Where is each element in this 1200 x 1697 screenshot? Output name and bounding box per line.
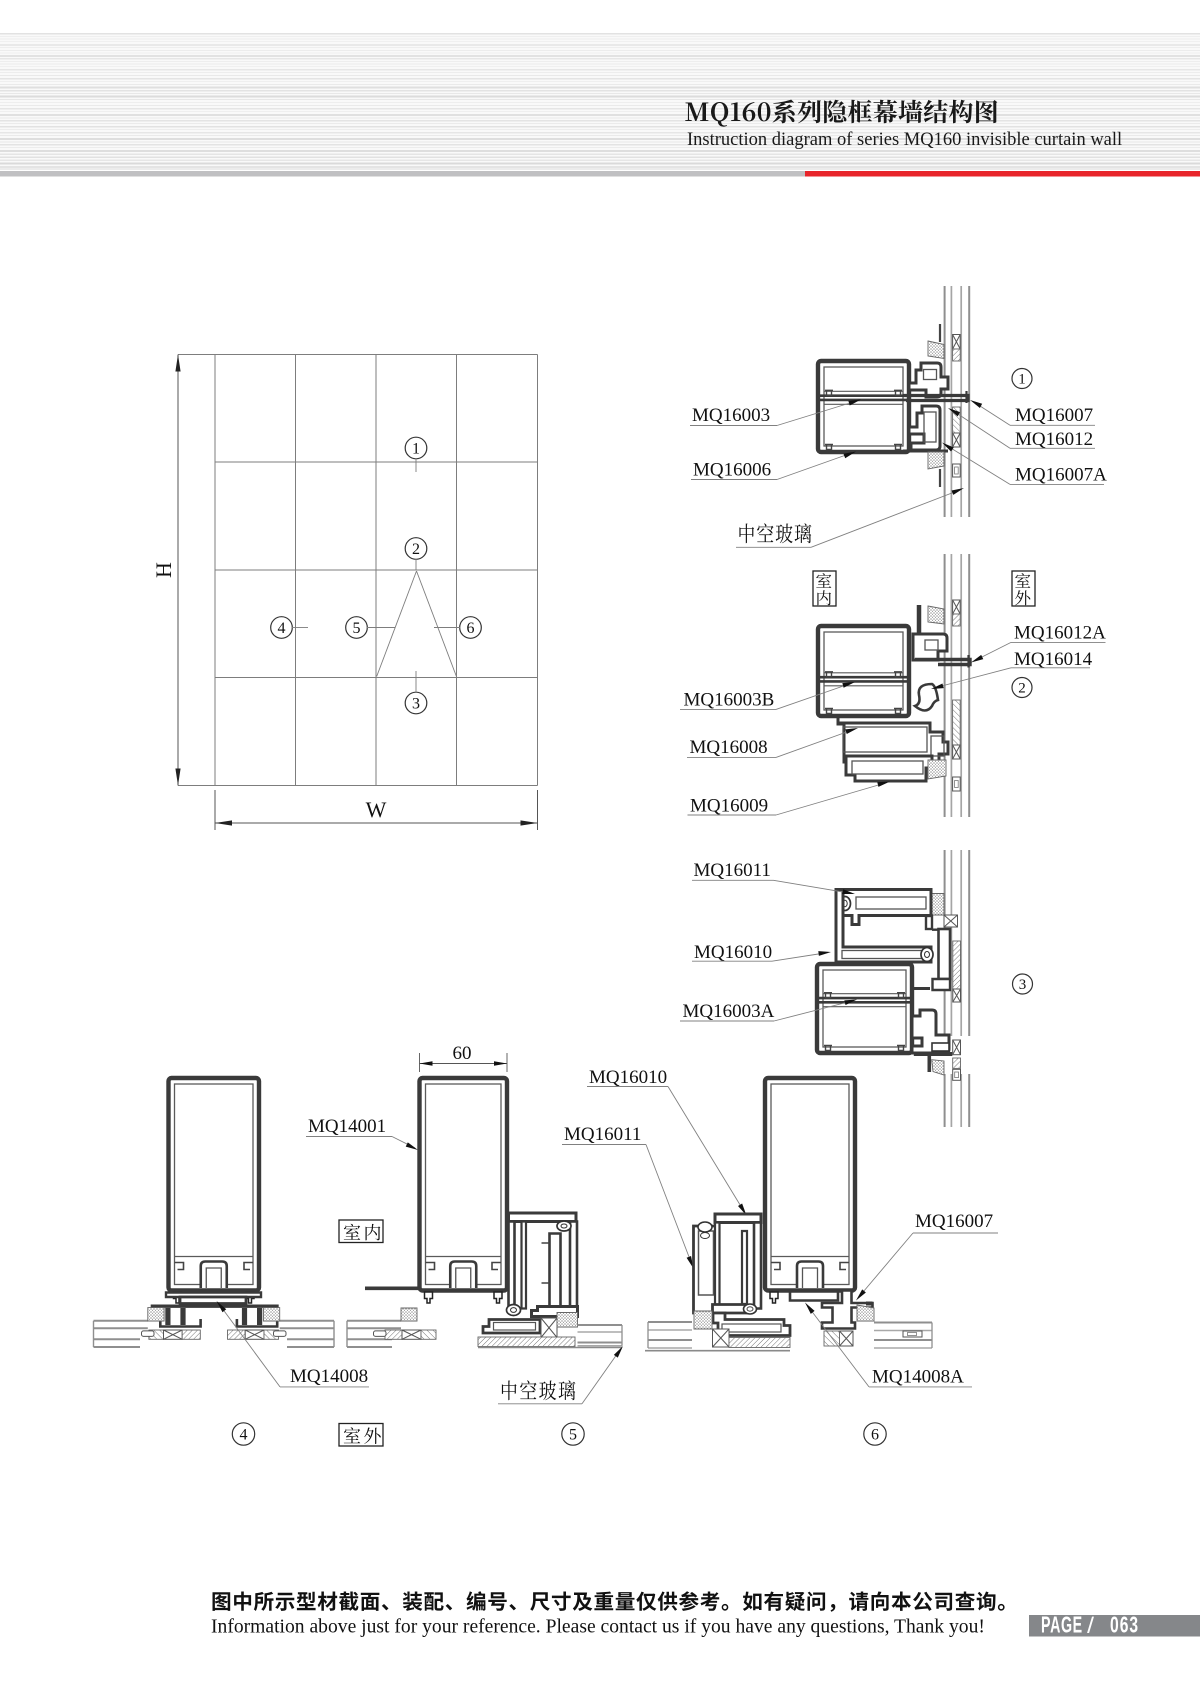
svg-text:MQ16009: MQ16009 (690, 796, 768, 817)
svg-text:Information above just for you: Information above just for your referenc… (211, 1617, 985, 1638)
svg-text:2: 2 (412, 541, 420, 558)
svg-text:063: 063 (1110, 1613, 1139, 1639)
svg-text:3: 3 (412, 696, 420, 713)
svg-text:MQ16003B: MQ16003B (684, 690, 775, 711)
svg-text:MQ16003: MQ16003 (692, 405, 770, 426)
svg-text:1: 1 (1018, 372, 1026, 388)
svg-text:6: 6 (467, 620, 475, 637)
svg-text:MQ16008: MQ16008 (690, 737, 768, 758)
svg-text:MQ16010: MQ16010 (589, 1067, 667, 1088)
svg-text:PAGE: PAGE (1041, 1613, 1083, 1638)
svg-text:5: 5 (353, 620, 361, 637)
svg-text:MQ14008A: MQ14008A (872, 1367, 964, 1388)
svg-text:MQ16014: MQ16014 (1014, 649, 1093, 670)
svg-text:MQ16012: MQ16012 (1015, 429, 1093, 450)
svg-text:MQ16003A: MQ16003A (683, 1001, 775, 1022)
svg-text:MQ16012A: MQ16012A (1014, 623, 1106, 644)
svg-text:3: 3 (1019, 977, 1027, 993)
svg-text:2: 2 (1018, 681, 1026, 697)
svg-text:4: 4 (278, 620, 286, 637)
svg-text:5: 5 (569, 1427, 577, 1444)
svg-text:60: 60 (453, 1043, 472, 1064)
svg-text:4: 4 (240, 1427, 248, 1444)
svg-text:MQ16010: MQ16010 (694, 942, 772, 963)
svg-text:MQ16007A: MQ16007A (1015, 465, 1107, 486)
svg-text:MQ16006: MQ16006 (693, 460, 771, 481)
svg-text:MQ16011: MQ16011 (694, 860, 771, 881)
svg-text:MQ14001: MQ14001 (308, 1116, 386, 1137)
svg-text:6: 6 (871, 1427, 879, 1444)
svg-text:MQ16007: MQ16007 (1015, 405, 1093, 426)
svg-text:H: H (151, 562, 176, 578)
svg-text:MQ16011: MQ16011 (564, 1124, 641, 1145)
svg-text:W: W (366, 797, 387, 822)
svg-text:MQ16007: MQ16007 (915, 1211, 993, 1232)
svg-text:MQ14008: MQ14008 (290, 1366, 368, 1387)
svg-text:1: 1 (412, 441, 420, 458)
